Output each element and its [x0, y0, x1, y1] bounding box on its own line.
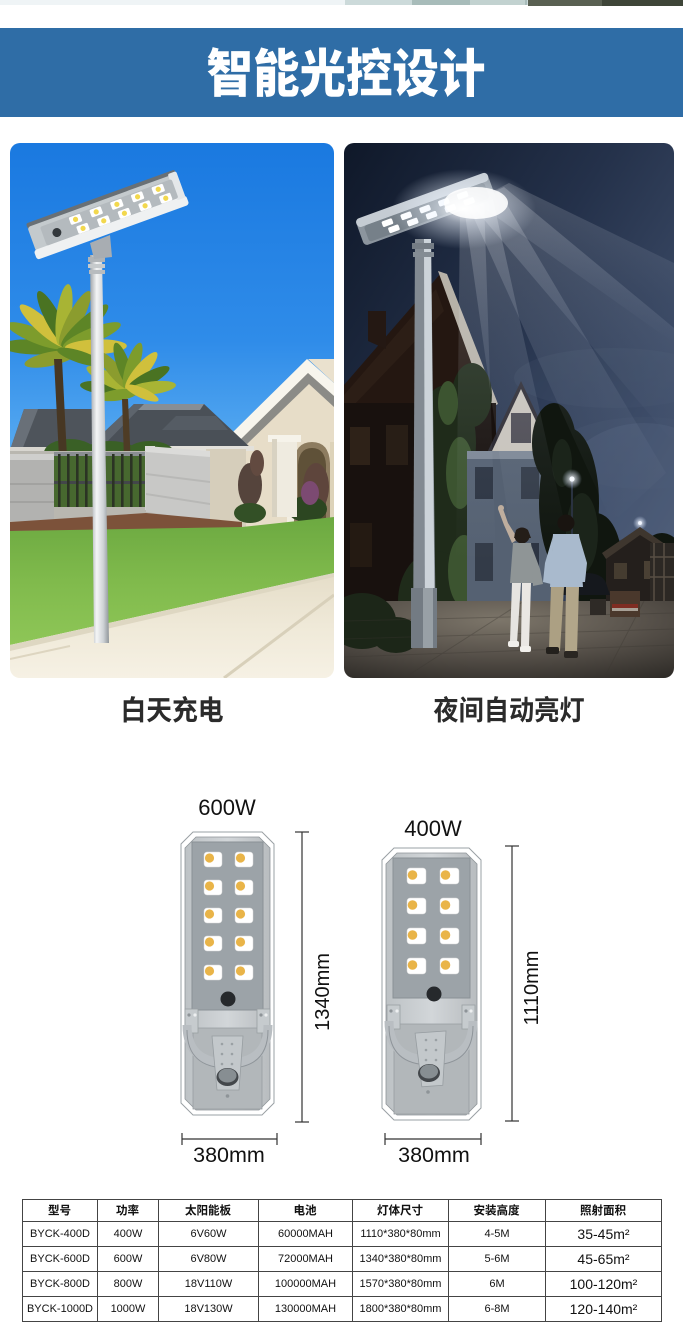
svg-text:400W: 400W — [404, 816, 462, 841]
svg-text:380mm: 380mm — [193, 1143, 265, 1167]
svg-text:600W: 600W — [198, 795, 256, 820]
svg-text:1110mm: 1110mm — [521, 951, 543, 1026]
svg-text:380mm: 380mm — [398, 1143, 470, 1167]
svg-text:1340mm: 1340mm — [312, 953, 334, 1031]
